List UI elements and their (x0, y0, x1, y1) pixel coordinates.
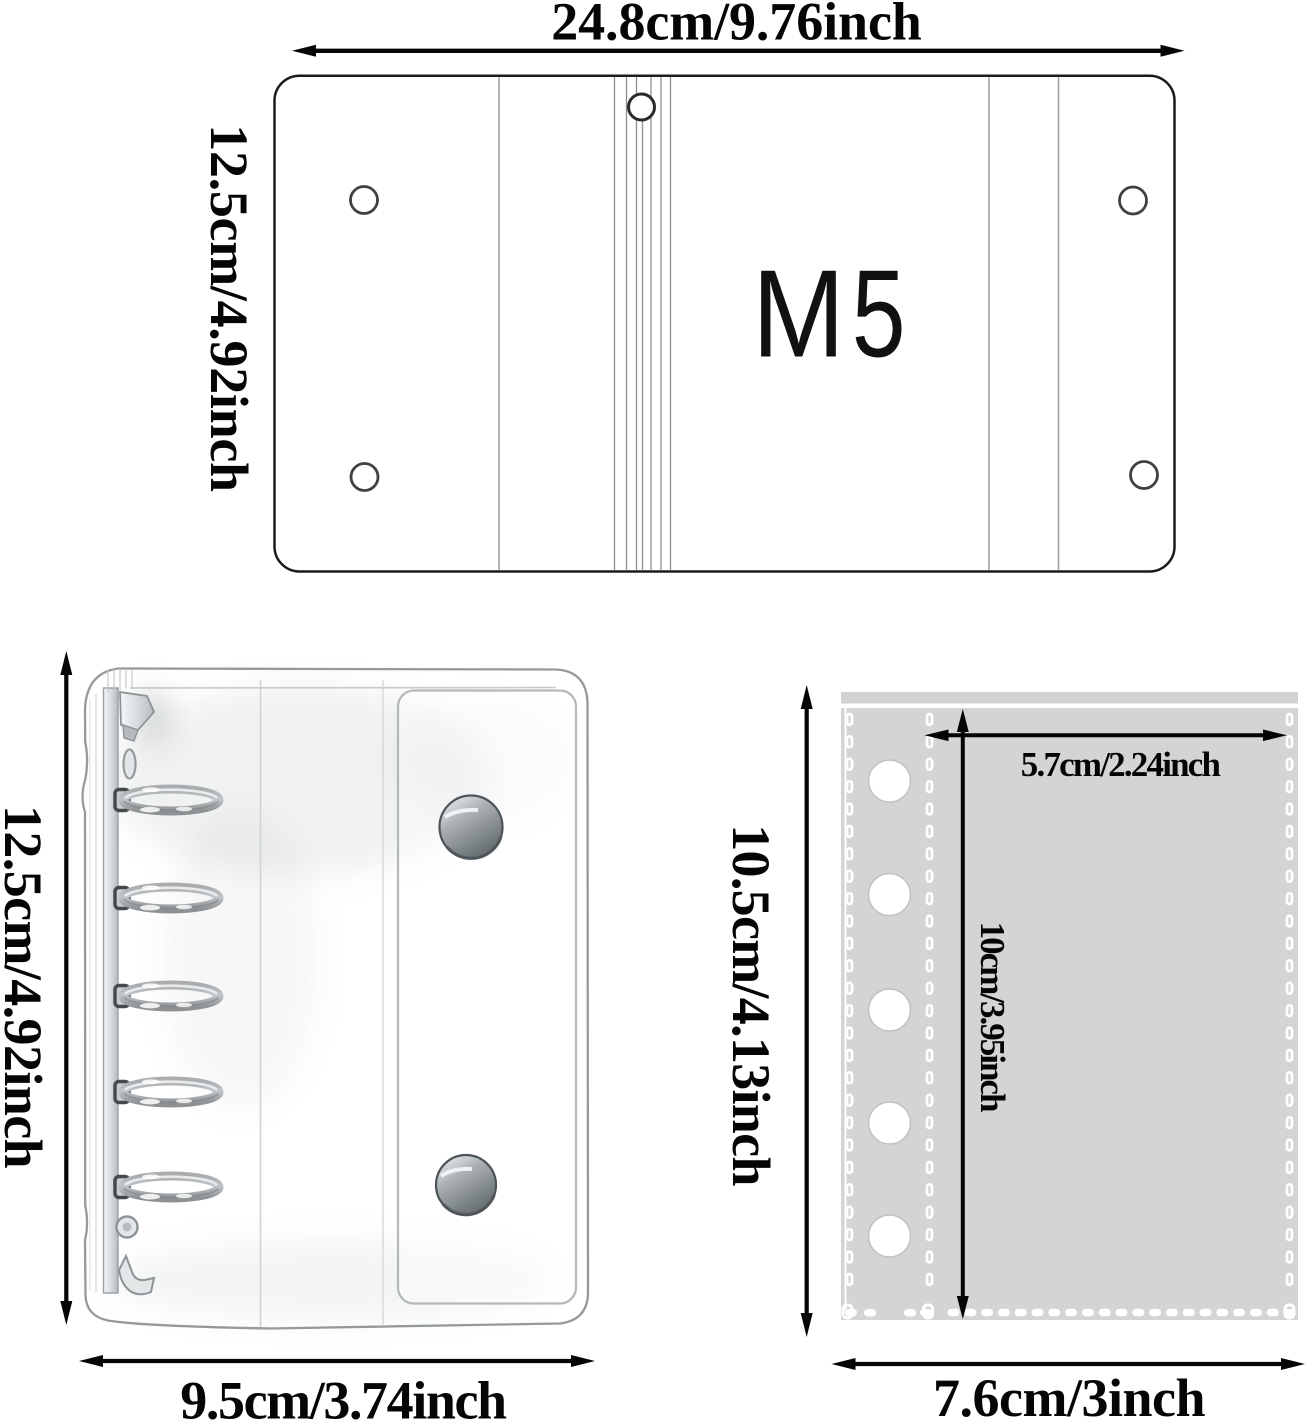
svg-text:5.7cm/2.24inch: 5.7cm/2.24inch (1021, 745, 1221, 784)
svg-text:7.6cm/3inch: 7.6cm/3inch (933, 1368, 1205, 1425)
svg-text:12.5cm/4.92inch: 12.5cm/4.92inch (0, 805, 53, 1169)
svg-text:5: 5 (852, 244, 906, 383)
svg-text:12.5cm/4.92inch: 12.5cm/4.92inch (199, 124, 259, 492)
svg-text:M: M (752, 244, 845, 383)
svg-text:9.5cm/3.74inch: 9.5cm/3.74inch (180, 1371, 507, 1425)
svg-text:10.5cm/4.13inch: 10.5cm/4.13inch (721, 824, 781, 1186)
svg-text:24.8cm/9.76inch: 24.8cm/9.76inch (551, 0, 922, 52)
svg-text:10cm/3.95inch: 10cm/3.95inch (973, 922, 1012, 1112)
